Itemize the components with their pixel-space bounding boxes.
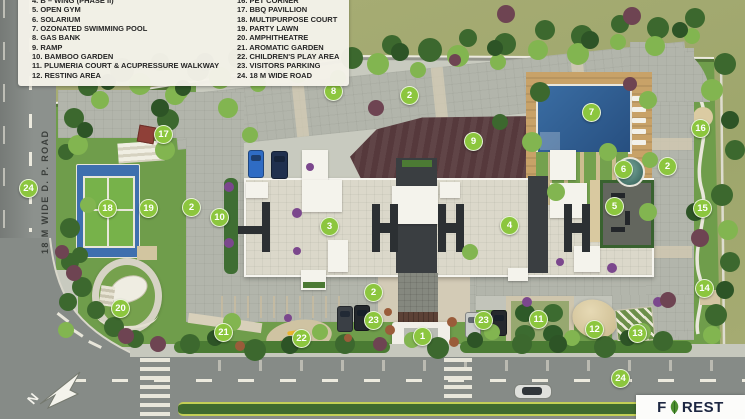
gym-equipment	[611, 227, 625, 232]
marker-23: 23	[364, 311, 383, 330]
marker-2: 2	[400, 86, 419, 105]
legend-column-right: 16. PET CORNER17. BBQ PAVILLION18. MULTI…	[237, 0, 347, 80]
legend-item: 8. GAS BANK	[32, 33, 232, 42]
legend-item: 9. RAMP	[32, 43, 232, 52]
roof-block	[508, 268, 528, 281]
pool-lounger	[632, 140, 646, 145]
compass-north-arrow: N	[24, 362, 94, 418]
pool-steps	[540, 132, 560, 150]
legend-item: 21. AROMATIC GARDEN	[237, 43, 347, 52]
parked-car	[491, 310, 507, 336]
marker-5: 5	[605, 197, 624, 216]
elevator-core	[372, 204, 398, 252]
channel-planter	[402, 160, 432, 167]
marker-2: 2	[658, 157, 677, 176]
parked-car	[248, 150, 264, 178]
marker-7: 7	[582, 103, 601, 122]
parked-car	[337, 306, 353, 332]
marker-2: 2	[364, 283, 383, 302]
legend-item: 24. 18 M WIDE ROAD	[237, 71, 347, 80]
marker-21: 21	[214, 323, 233, 342]
site-plan: 18 M WIDE D. P. ROAD 4. B – WING (PHASE …	[0, 0, 745, 419]
parked-car	[271, 151, 288, 179]
marker-1: 1	[413, 327, 432, 346]
marker-11: 11	[529, 310, 548, 329]
legend-item: 18. MULTIPURPOSE COURT	[237, 15, 347, 24]
elevator-core	[564, 204, 590, 252]
building-core-channel	[528, 176, 548, 273]
roof-block	[440, 182, 460, 198]
legend-item: 20. AMPHITHEATRE	[237, 33, 347, 42]
legend-item: 5. OPEN GYM	[32, 5, 232, 14]
marker-15: 15	[693, 199, 712, 218]
elevator-core	[438, 204, 464, 252]
marker-18: 18	[98, 199, 117, 218]
entrance-canopy	[398, 312, 438, 322]
road-edge-line	[3, 0, 5, 235]
paver-strip	[291, 81, 309, 137]
marker-3: 3	[320, 217, 339, 236]
car-cabin	[522, 387, 542, 395]
legend-item: 11. PLUMERIA COURT & ACUPRESSURE WALKWAY	[32, 61, 232, 70]
logo-text-f: F	[657, 399, 667, 416]
roof-block	[302, 180, 342, 212]
pool-lounger	[632, 107, 646, 112]
pool-lounger	[632, 129, 646, 134]
marker-20: 20	[111, 299, 130, 318]
dp-road-label: 18 M WIDE D. P. ROAD	[40, 114, 50, 254]
bamboo-garden-hedge	[224, 178, 238, 274]
marker-22: 22	[292, 329, 311, 348]
legend-item: 23. VISITORS PARKING	[237, 61, 347, 70]
gym-equipment	[625, 211, 630, 225]
crosswalk-left	[140, 358, 170, 419]
legend-item: 12. RESTING AREA	[32, 71, 232, 80]
marker-17: 17	[154, 125, 173, 144]
marker-12: 12	[585, 320, 604, 339]
legend-column-left: 4. B – WING (PHASE II)5. OPEN GYM6. SOLA…	[32, 0, 232, 80]
legend-panel: 4. B – WING (PHASE II)5. OPEN GYM6. SOLA…	[18, 0, 349, 86]
marker-19: 19	[139, 199, 158, 218]
marker-24: 24	[19, 179, 38, 198]
leaf-icon	[668, 399, 681, 416]
roof-block	[302, 150, 328, 180]
forest-logo: F REST	[636, 395, 745, 419]
roof-block	[392, 186, 438, 224]
paver-crossing	[645, 138, 692, 150]
legend-item: 7. OZONATED SWIMMING POOL	[32, 24, 232, 33]
marker-9: 9	[464, 132, 483, 151]
hedge-row	[174, 341, 390, 353]
elevator-core	[254, 202, 270, 252]
legend-item: 22. CHILDREN'S PLAY AREA	[237, 52, 347, 61]
pool-lounger	[632, 118, 646, 123]
marker-14: 14	[695, 279, 714, 298]
balcony-planter	[303, 282, 325, 288]
marker-2: 2	[182, 198, 201, 217]
marker-6: 6	[614, 160, 633, 179]
paver-strip	[431, 67, 449, 123]
hedge-row	[460, 341, 692, 353]
lane-dashes-bottom-road	[70, 379, 745, 382]
logo-text-rest: REST	[682, 399, 724, 416]
marker-16: 16	[691, 119, 710, 138]
roof-block	[550, 150, 576, 180]
roof-block	[328, 240, 348, 272]
legend-item: 19. PARTY LAWN	[237, 24, 347, 33]
marker-24: 24	[611, 369, 630, 388]
entrance-court	[398, 273, 438, 313]
legend-item: 17. BBQ PAVILLION	[237, 5, 347, 14]
legend-item: 6. SOLARIUM	[32, 15, 232, 24]
pool-lounger	[632, 96, 646, 101]
legend-item: 10. BAMBOO GARDEN	[32, 52, 232, 61]
roof-block	[246, 182, 268, 198]
parking-bay-lines	[210, 296, 350, 318]
road-car	[514, 384, 552, 399]
open-gym-path	[590, 180, 600, 242]
marker-13: 13	[628, 324, 647, 343]
marker-10: 10	[210, 208, 229, 227]
compass-letter: N	[24, 390, 42, 407]
marker-4: 4	[500, 216, 519, 235]
marker-23: 23	[474, 311, 493, 330]
